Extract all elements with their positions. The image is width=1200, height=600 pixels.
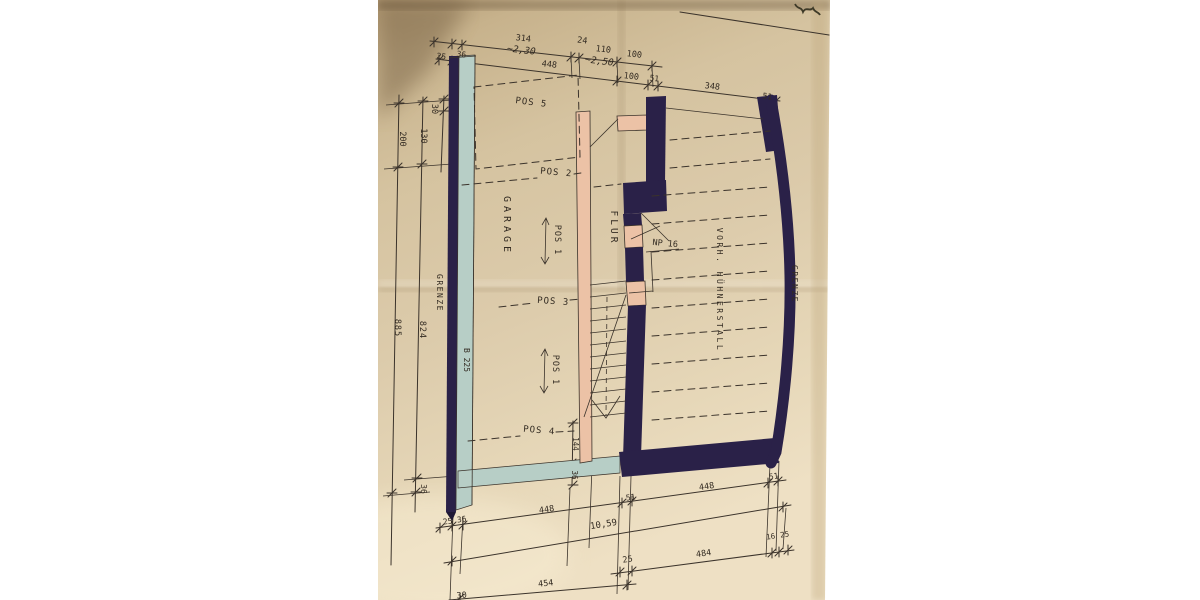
dim-448-bottom-right: 448: [698, 481, 715, 493]
wall-block-landing: [623, 180, 667, 214]
dim-484: 484: [695, 548, 712, 560]
paper-shadow-top: [378, 0, 830, 10]
label-huehnerstall: VORH. HÜHNERSTALL: [715, 228, 725, 352]
label-grenze-left: GRENZE: [435, 274, 444, 312]
dim-24: 24: [577, 35, 588, 46]
label-grenze-right: GRENZE: [790, 265, 799, 303]
dim-885-left: 885: [392, 319, 402, 337]
dim-448-bottom-left: 448: [538, 504, 555, 516]
dim-36-stair: 36: [570, 470, 579, 480]
dim-144-stair: 144: [571, 437, 580, 451]
floorplan-drawing: 314~2,3024110~2,501004481005134851253630…: [0, 0, 1200, 600]
dim-51-top-b: 51: [762, 91, 773, 101]
label-pos1-upper: POS 1: [552, 225, 562, 256]
door-upper-pink: [624, 225, 643, 248]
floorplan-photo-stage: 314~2,3024110~2,501004481005134851253630…: [0, 0, 1200, 600]
paper-shadow-rightedge: [812, 0, 826, 600]
dim-200-left: 200: [397, 131, 407, 146]
dim-51-bottom-center: 51: [625, 492, 636, 502]
dim-348-top: 348: [704, 81, 720, 93]
dim-36-bottom-left: 36: [456, 514, 467, 524]
dim-16-bottom-right: 16: [766, 531, 777, 541]
label-garage: GARAGE: [501, 196, 512, 256]
paper-crease-horizontal-dark: [378, 287, 830, 292]
dim-25-topleft: 25: [436, 51, 447, 61]
dim-454: 454: [538, 578, 554, 590]
dim-36-left-bottom: 36: [419, 484, 428, 494]
dim-25-row-e: 25: [622, 554, 634, 565]
wall-pier-b: [625, 247, 644, 282]
dim-25-bottom-left: 25: [442, 516, 453, 526]
paper-crease-vertical: [618, 0, 625, 292]
door-lower-pink: [626, 281, 646, 306]
dim-100-top-a: 100: [626, 49, 642, 61]
wall-pier-a: [623, 213, 642, 226]
dim-130-left: 130: [418, 128, 428, 143]
label-flur: FLUR: [608, 211, 619, 246]
dim-51-top-a: 51: [649, 73, 660, 83]
dim-110: 110: [595, 44, 611, 56]
dim-824-left: 824: [417, 321, 427, 339]
wall-block-top-right: [646, 96, 666, 185]
dim-30-bottom: 30: [456, 591, 467, 600]
label-b225: B 225: [462, 348, 471, 372]
dim-25-bottom-right: 25: [780, 529, 790, 539]
dim-36-topleft: 36: [456, 49, 467, 59]
label-pos1-lower: POS 1: [550, 355, 560, 386]
dim-30-left: 30: [429, 104, 439, 114]
door-lintel-top-pink: [617, 115, 648, 131]
dim-314: 314: [515, 33, 531, 45]
dim-51-bottom-right: 51: [768, 471, 779, 481]
dim-100-top-b: 100: [623, 71, 639, 83]
dim-448-top: 448: [541, 59, 557, 71]
